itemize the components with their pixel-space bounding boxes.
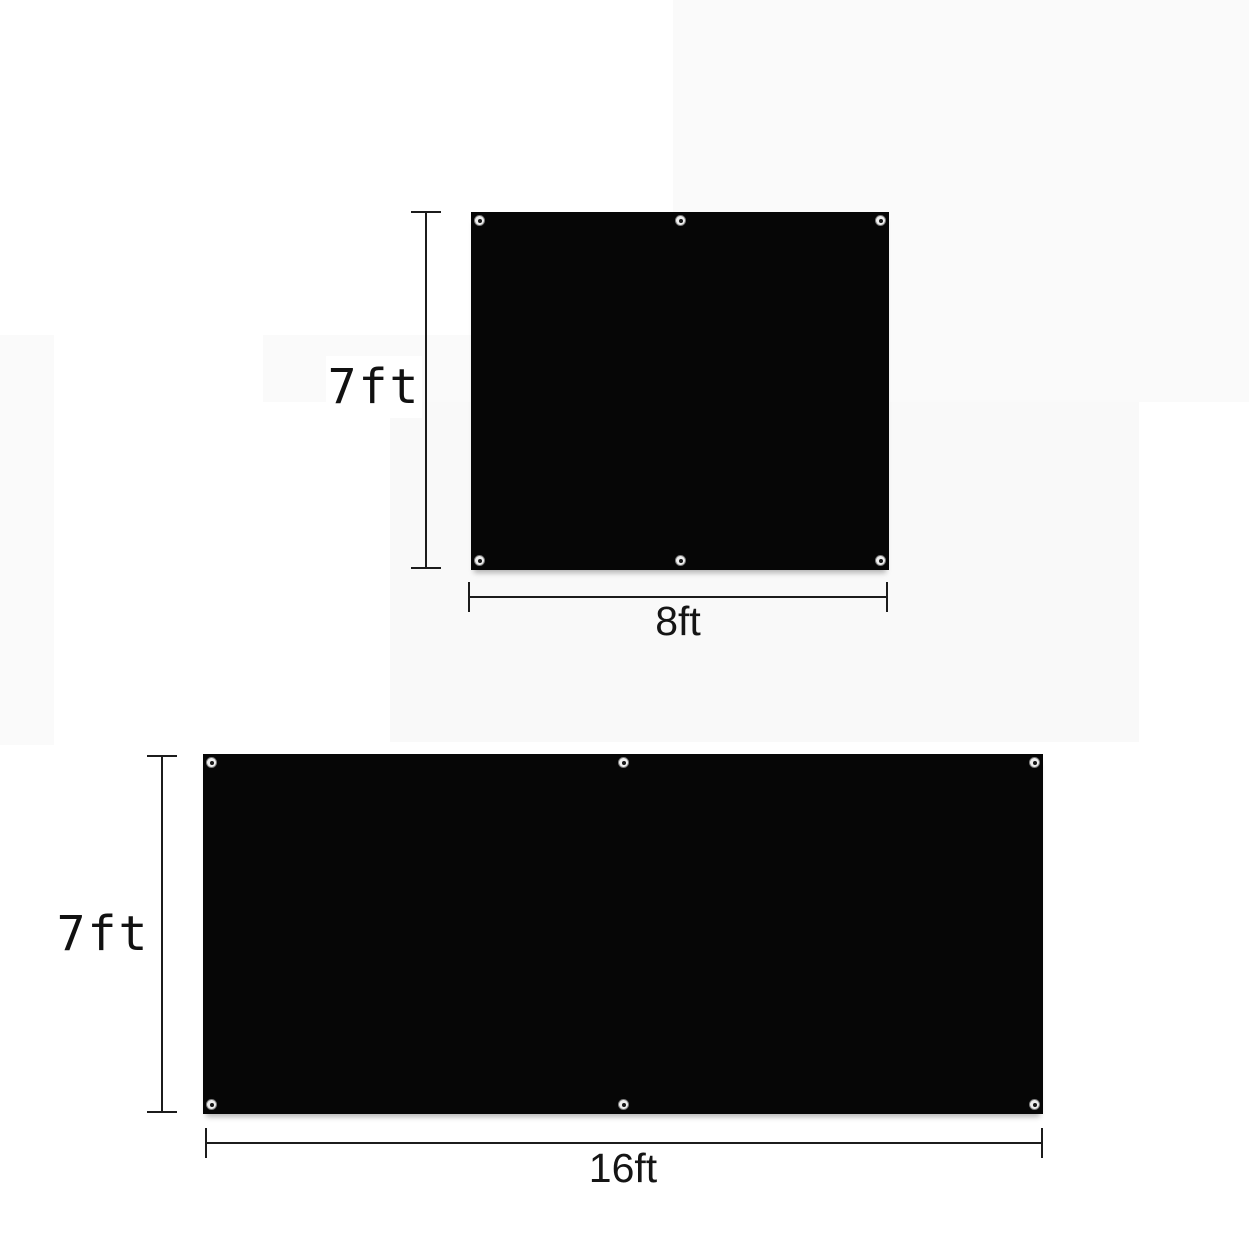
height-label: 7ft xyxy=(48,903,158,965)
tarp-7x8-image xyxy=(471,212,889,570)
background-patch xyxy=(0,335,54,745)
grommet-icon xyxy=(618,757,629,768)
grommet-icon xyxy=(675,215,686,226)
dimension-tick xyxy=(147,755,177,757)
tarp-7x16-image xyxy=(203,754,1043,1114)
dimension-tick xyxy=(147,1111,177,1113)
dimension-tick xyxy=(411,567,441,569)
grommet-icon xyxy=(618,1099,629,1110)
grommet-icon xyxy=(206,1099,217,1110)
grommet-icon xyxy=(1029,757,1040,768)
dimension-tick xyxy=(205,1128,207,1158)
dimension-tick xyxy=(1041,1128,1043,1158)
grommet-icon xyxy=(474,555,485,566)
dimension-tick xyxy=(411,211,441,213)
product-dimension-diagram: 7ft 8ft 7ft 16ft xyxy=(0,0,1249,1249)
grommet-icon xyxy=(875,555,886,566)
grommet-icon xyxy=(206,757,217,768)
grommet-icon xyxy=(1029,1099,1040,1110)
grommet-icon xyxy=(675,555,686,566)
height-dimension-line xyxy=(161,756,163,1113)
grommet-icon xyxy=(875,215,886,226)
dimension-tick xyxy=(886,582,888,612)
width-label: 16ft xyxy=(553,1148,693,1189)
width-dimension-line xyxy=(206,1142,1043,1144)
height-label: 7ft xyxy=(326,356,422,418)
dimension-tick xyxy=(468,582,470,612)
height-dimension-line xyxy=(425,212,427,569)
width-label: 8ft xyxy=(618,601,738,642)
grommet-icon xyxy=(474,215,485,226)
